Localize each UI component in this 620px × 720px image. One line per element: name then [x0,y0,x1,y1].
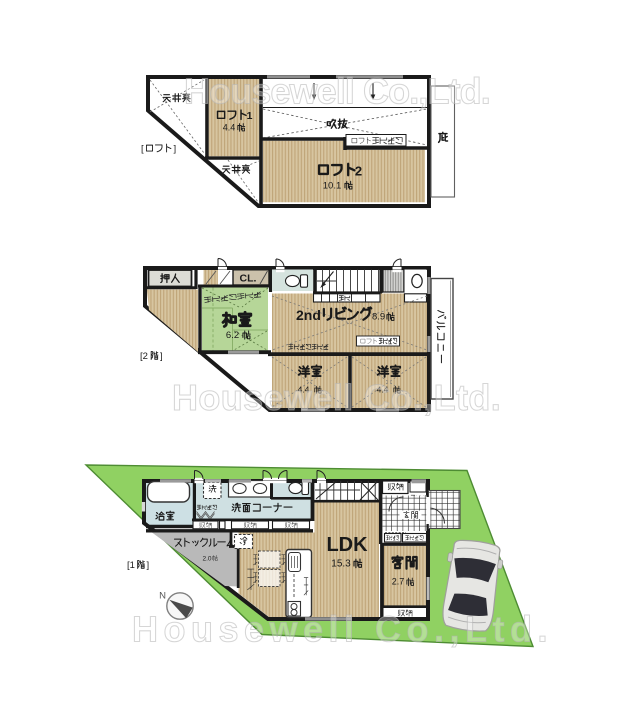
svg-text:CL.: CL. [240,273,257,285]
svg-text:4.4: 4.4 [223,123,236,133]
svg-text:1: 1 [247,110,253,122]
svg-text:2nd: 2nd [296,307,321,323]
svg-text:]: ] [174,144,177,155]
svg-text:8.9: 8.9 [372,312,385,323]
svg-text:Housewell Co.,Ltd.: Housewell Co.,Ltd. [132,609,553,650]
svg-text:15.3: 15.3 [331,559,351,570]
svg-text:2: 2 [355,164,362,179]
svg-text:[: [ [141,144,144,155]
svg-text:Housewell Co.,Ltd.: Housewell Co.,Ltd. [184,71,490,112]
svg-text:Housewell Co.,Ltd.: Housewell Co.,Ltd. [172,377,501,418]
svg-text:[2: [2 [140,351,148,362]
svg-text:]: ] [160,351,163,362]
svg-text:2.7: 2.7 [392,577,405,587]
svg-text:LDK: LDK [326,534,368,556]
svg-text:]: ] [147,560,150,571]
svg-text:2.0: 2.0 [202,556,211,563]
svg-text:[1: [1 [127,560,135,571]
svg-text:N: N [159,591,166,602]
svg-text:6.2: 6.2 [226,330,239,341]
svg-text:10.1: 10.1 [323,181,342,192]
